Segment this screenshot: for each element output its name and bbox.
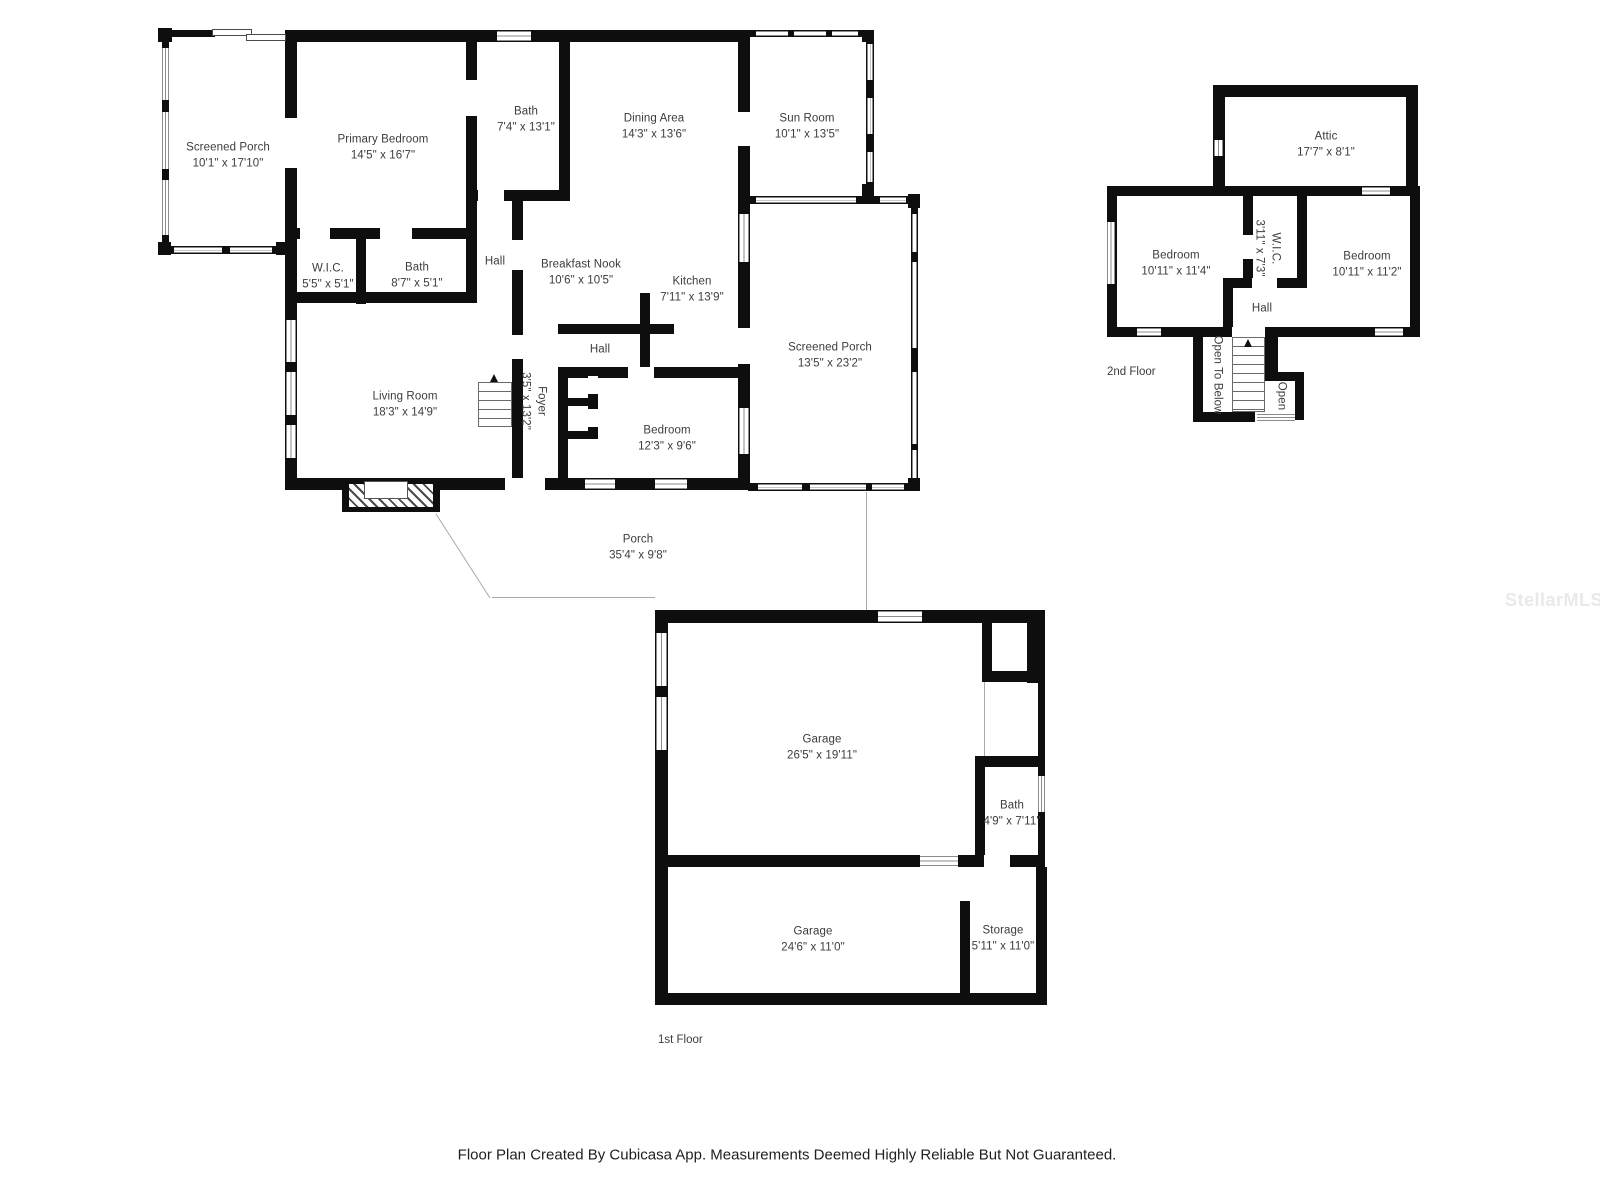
room-name: Open To Below xyxy=(1210,335,1223,414)
window xyxy=(286,425,296,458)
window xyxy=(174,247,222,253)
room-label-kitchen: Kitchen 7'11" x 13'9" xyxy=(660,275,724,304)
door-opening xyxy=(1232,327,1265,337)
room-label-screened-porch-right: Screened Porch 13'5" x 23'2" xyxy=(788,341,872,370)
window xyxy=(810,484,866,490)
window xyxy=(656,633,667,686)
window xyxy=(832,31,858,36)
door-opening xyxy=(1252,278,1277,288)
wall xyxy=(1213,85,1418,97)
room-dims: 10'11" x 11'4" xyxy=(1141,266,1210,279)
room-name: Garage xyxy=(794,925,833,938)
wall xyxy=(297,292,477,303)
window xyxy=(1107,222,1115,284)
room-label-bedroom-1f: Bedroom 12'3" x 9'6" xyxy=(638,424,696,453)
room-name: Garage xyxy=(803,733,842,746)
fireplace-box xyxy=(364,481,408,499)
wall xyxy=(1193,332,1203,420)
room-name: Bath xyxy=(514,105,538,118)
porch-boundary-line xyxy=(984,682,985,756)
stairs-icon xyxy=(1232,337,1265,412)
room-dims: 7'11" x 13'9" xyxy=(660,292,724,305)
room-label-screened-porch-left: Screened Porch 10'1" x 17'10" xyxy=(186,141,270,170)
room-name: Foyer xyxy=(535,386,548,416)
room-dims: 3'11" x 7'3" xyxy=(1252,219,1265,276)
room-label-primary-bedroom: Primary Bedroom 14'5" x 16'7" xyxy=(338,133,429,162)
room-dims: 5'11" x 11'0" xyxy=(972,941,1035,954)
room-label-bath-primary: Bath 7'4" x 13'1" xyxy=(497,105,555,134)
room-dims: 3'5" x 13'2" xyxy=(518,372,531,430)
door-opening xyxy=(588,376,598,394)
porch-boundary-line xyxy=(428,508,500,604)
watermark: StellarMLS xyxy=(1505,590,1600,611)
stairs-up-arrow xyxy=(1244,339,1252,347)
room-dims: 10'1" x 17'10" xyxy=(193,158,264,171)
first-floor-label: 1st Floor xyxy=(658,1034,703,1046)
wall xyxy=(1410,186,1420,337)
room-label-foyer: Foyer 3'5" x 13'2" xyxy=(518,372,547,430)
window xyxy=(162,48,169,100)
door-opening xyxy=(628,367,654,378)
room-name: Dining Area xyxy=(624,112,685,125)
room-name: Breakfast Nook xyxy=(541,258,621,271)
window xyxy=(867,44,873,80)
room-label-open: Open xyxy=(1274,382,1287,411)
door-opening xyxy=(300,228,330,239)
door-opening xyxy=(285,118,297,168)
room-name: Hall xyxy=(485,255,505,268)
second-floor-label: 2nd Floor xyxy=(1107,366,1156,378)
door-opening xyxy=(738,112,750,146)
wall xyxy=(1038,682,1045,767)
wall xyxy=(1295,372,1304,420)
room-name: Screened Porch xyxy=(186,141,270,154)
room-name: Bath xyxy=(1000,799,1024,812)
room-dims: 14'3" x 13'6" xyxy=(622,129,686,142)
window xyxy=(920,856,958,866)
window xyxy=(1257,414,1295,421)
window xyxy=(286,372,296,415)
room-name: Bedroom xyxy=(1343,250,1390,263)
room-label-bath-garage: Bath 4'9" x 7'11" xyxy=(983,799,1040,828)
wall xyxy=(1193,412,1255,422)
wall xyxy=(655,993,1047,1005)
room-name: Sun Room xyxy=(779,112,834,125)
window xyxy=(739,408,749,454)
window xyxy=(1137,328,1161,336)
floor-plan-page: Screened Porch 10'1" x 17'10" Primary Be… xyxy=(0,0,1600,1200)
room-name: Hall xyxy=(590,343,610,356)
wall xyxy=(960,901,970,993)
room-dims: 4'9" x 7'11" xyxy=(983,816,1040,829)
room-label-open-to-below: Open To Below xyxy=(1210,335,1223,414)
window xyxy=(1214,140,1223,156)
room-label-dining-area: Dining Area 14'3" x 13'6" xyxy=(622,112,686,141)
room-name: Attic xyxy=(1315,130,1338,143)
room-label-attic: Attic 17'7" x 8'1" xyxy=(1297,130,1355,159)
room-dims: 26'5" x 19'11" xyxy=(787,750,857,763)
window xyxy=(585,479,615,489)
room-label-porch: Porch 35'4" x 9'8" xyxy=(609,533,667,562)
room-name: Porch xyxy=(623,533,654,546)
porch-boundary-line xyxy=(492,597,655,598)
room-label-garage-rear: Garage 24'6" x 11'0" xyxy=(781,925,845,954)
room-dims: 8'7" x 5'1" xyxy=(391,278,442,291)
room-label-garage-main: Garage 26'5" x 19'11" xyxy=(787,733,857,762)
window xyxy=(656,697,667,750)
wall xyxy=(1297,186,1307,288)
window xyxy=(758,484,802,490)
room-name: Open xyxy=(1274,382,1287,411)
door-opening xyxy=(512,335,523,359)
room-label-living-room: Living Room 18'3" x 14'9" xyxy=(372,390,437,419)
wall xyxy=(640,293,650,377)
room-label-hall-2f: Hall xyxy=(1252,302,1272,315)
room-name: Bedroom xyxy=(1152,249,1199,262)
door-opening xyxy=(478,190,504,201)
room-dims: 17'7" x 8'1" xyxy=(1297,147,1355,160)
wall xyxy=(862,30,874,42)
room-name: W.I.C. xyxy=(1269,232,1282,264)
door-opening xyxy=(738,328,750,364)
wall xyxy=(1406,85,1418,186)
room-label-bedroom-2f-right: Bedroom 10'11" x 11'2" xyxy=(1332,250,1401,279)
wall xyxy=(558,431,598,439)
window xyxy=(867,98,873,134)
window xyxy=(880,197,906,203)
window xyxy=(878,611,922,622)
window xyxy=(756,31,788,36)
window xyxy=(739,214,749,262)
window xyxy=(756,197,856,203)
room-dims: 35'4" x 9'8" xyxy=(609,550,667,563)
room-dims: 13'5" x 23'2" xyxy=(798,358,862,371)
room-dims: 18'3" x 14'9" xyxy=(373,407,437,420)
window xyxy=(230,247,272,253)
room-dims: 12'3" x 9'6" xyxy=(638,441,696,454)
room-label-wic: W.I.C. 5'5" x 5'1" xyxy=(302,262,353,291)
door-opening xyxy=(512,240,523,270)
room-dims: 10'6" x 10'5" xyxy=(549,275,613,288)
wall xyxy=(170,30,215,37)
room-name: Kitchen xyxy=(672,275,711,288)
room-name: Hall xyxy=(1252,302,1272,315)
room-label-bath-hall: Bath 8'7" x 5'1" xyxy=(391,261,442,290)
stairs-icon xyxy=(478,382,512,427)
room-label-hall-center: Hall xyxy=(590,343,610,356)
window xyxy=(912,214,917,252)
door-opening xyxy=(380,228,412,239)
room-dims: 7'4" x 13'1" xyxy=(497,122,555,135)
room-label-hall-north: Hall xyxy=(485,255,505,268)
window xyxy=(286,320,296,362)
floor-plan-drawing xyxy=(0,0,1600,1200)
door-opening xyxy=(588,409,598,427)
footer-disclaimer: Floor Plan Created By Cubicasa App. Meas… xyxy=(458,1147,1117,1164)
door-opening xyxy=(466,80,477,116)
room-label-storage: Storage 5'11" x 11'0" xyxy=(972,924,1035,953)
porch-boundary-line xyxy=(866,492,867,610)
room-dims: 5'5" x 5'1" xyxy=(302,279,353,292)
room-name: W.I.C. xyxy=(312,262,344,275)
room-dims: 10'1" x 13'5" xyxy=(775,129,839,142)
room-label-breakfast-nook: Breakfast Nook 10'6" x 10'5" xyxy=(541,258,621,287)
window xyxy=(162,112,169,169)
room-name: Bath xyxy=(405,261,429,274)
window xyxy=(1375,328,1403,336)
window xyxy=(162,180,169,235)
window xyxy=(872,484,904,490)
room-dims: 14'5" x 16'7" xyxy=(351,150,415,163)
wall xyxy=(558,398,598,406)
room-label-sun-room: Sun Room 10'1" x 13'5" xyxy=(775,112,839,141)
room-dims: 10'11" x 11'2" xyxy=(1332,267,1401,280)
window xyxy=(912,450,917,478)
door-opening xyxy=(984,855,1010,867)
wall xyxy=(559,42,570,201)
stairs-up-arrow xyxy=(490,374,498,382)
room-name: Screened Porch xyxy=(788,341,872,354)
wall xyxy=(158,242,171,255)
wall xyxy=(655,855,920,867)
wall xyxy=(558,324,674,334)
room-name: Bedroom xyxy=(643,424,690,437)
sliding-door-icon xyxy=(246,34,286,41)
room-name: Primary Bedroom xyxy=(338,133,429,146)
room-label-wic-2f: W.I.C. 3'11" x 7'3" xyxy=(1252,219,1281,276)
wall xyxy=(975,756,1045,767)
window xyxy=(912,372,917,444)
room-name: Living Room xyxy=(372,390,437,403)
room-dims: 24'6" x 11'0" xyxy=(781,942,845,955)
window xyxy=(655,479,687,489)
wall xyxy=(1036,867,1047,993)
room-name: Storage xyxy=(983,924,1024,937)
wall xyxy=(285,30,297,490)
window xyxy=(794,31,826,36)
wall xyxy=(1213,85,1225,186)
window xyxy=(912,262,917,348)
window xyxy=(1362,187,1390,195)
room-label-bedroom-2f-left: Bedroom 10'11" x 11'4" xyxy=(1141,249,1210,278)
window xyxy=(867,152,873,182)
wall xyxy=(558,367,568,490)
window xyxy=(497,31,531,41)
wall xyxy=(982,671,1045,682)
wall xyxy=(1265,332,1278,373)
door-opening xyxy=(505,478,545,490)
